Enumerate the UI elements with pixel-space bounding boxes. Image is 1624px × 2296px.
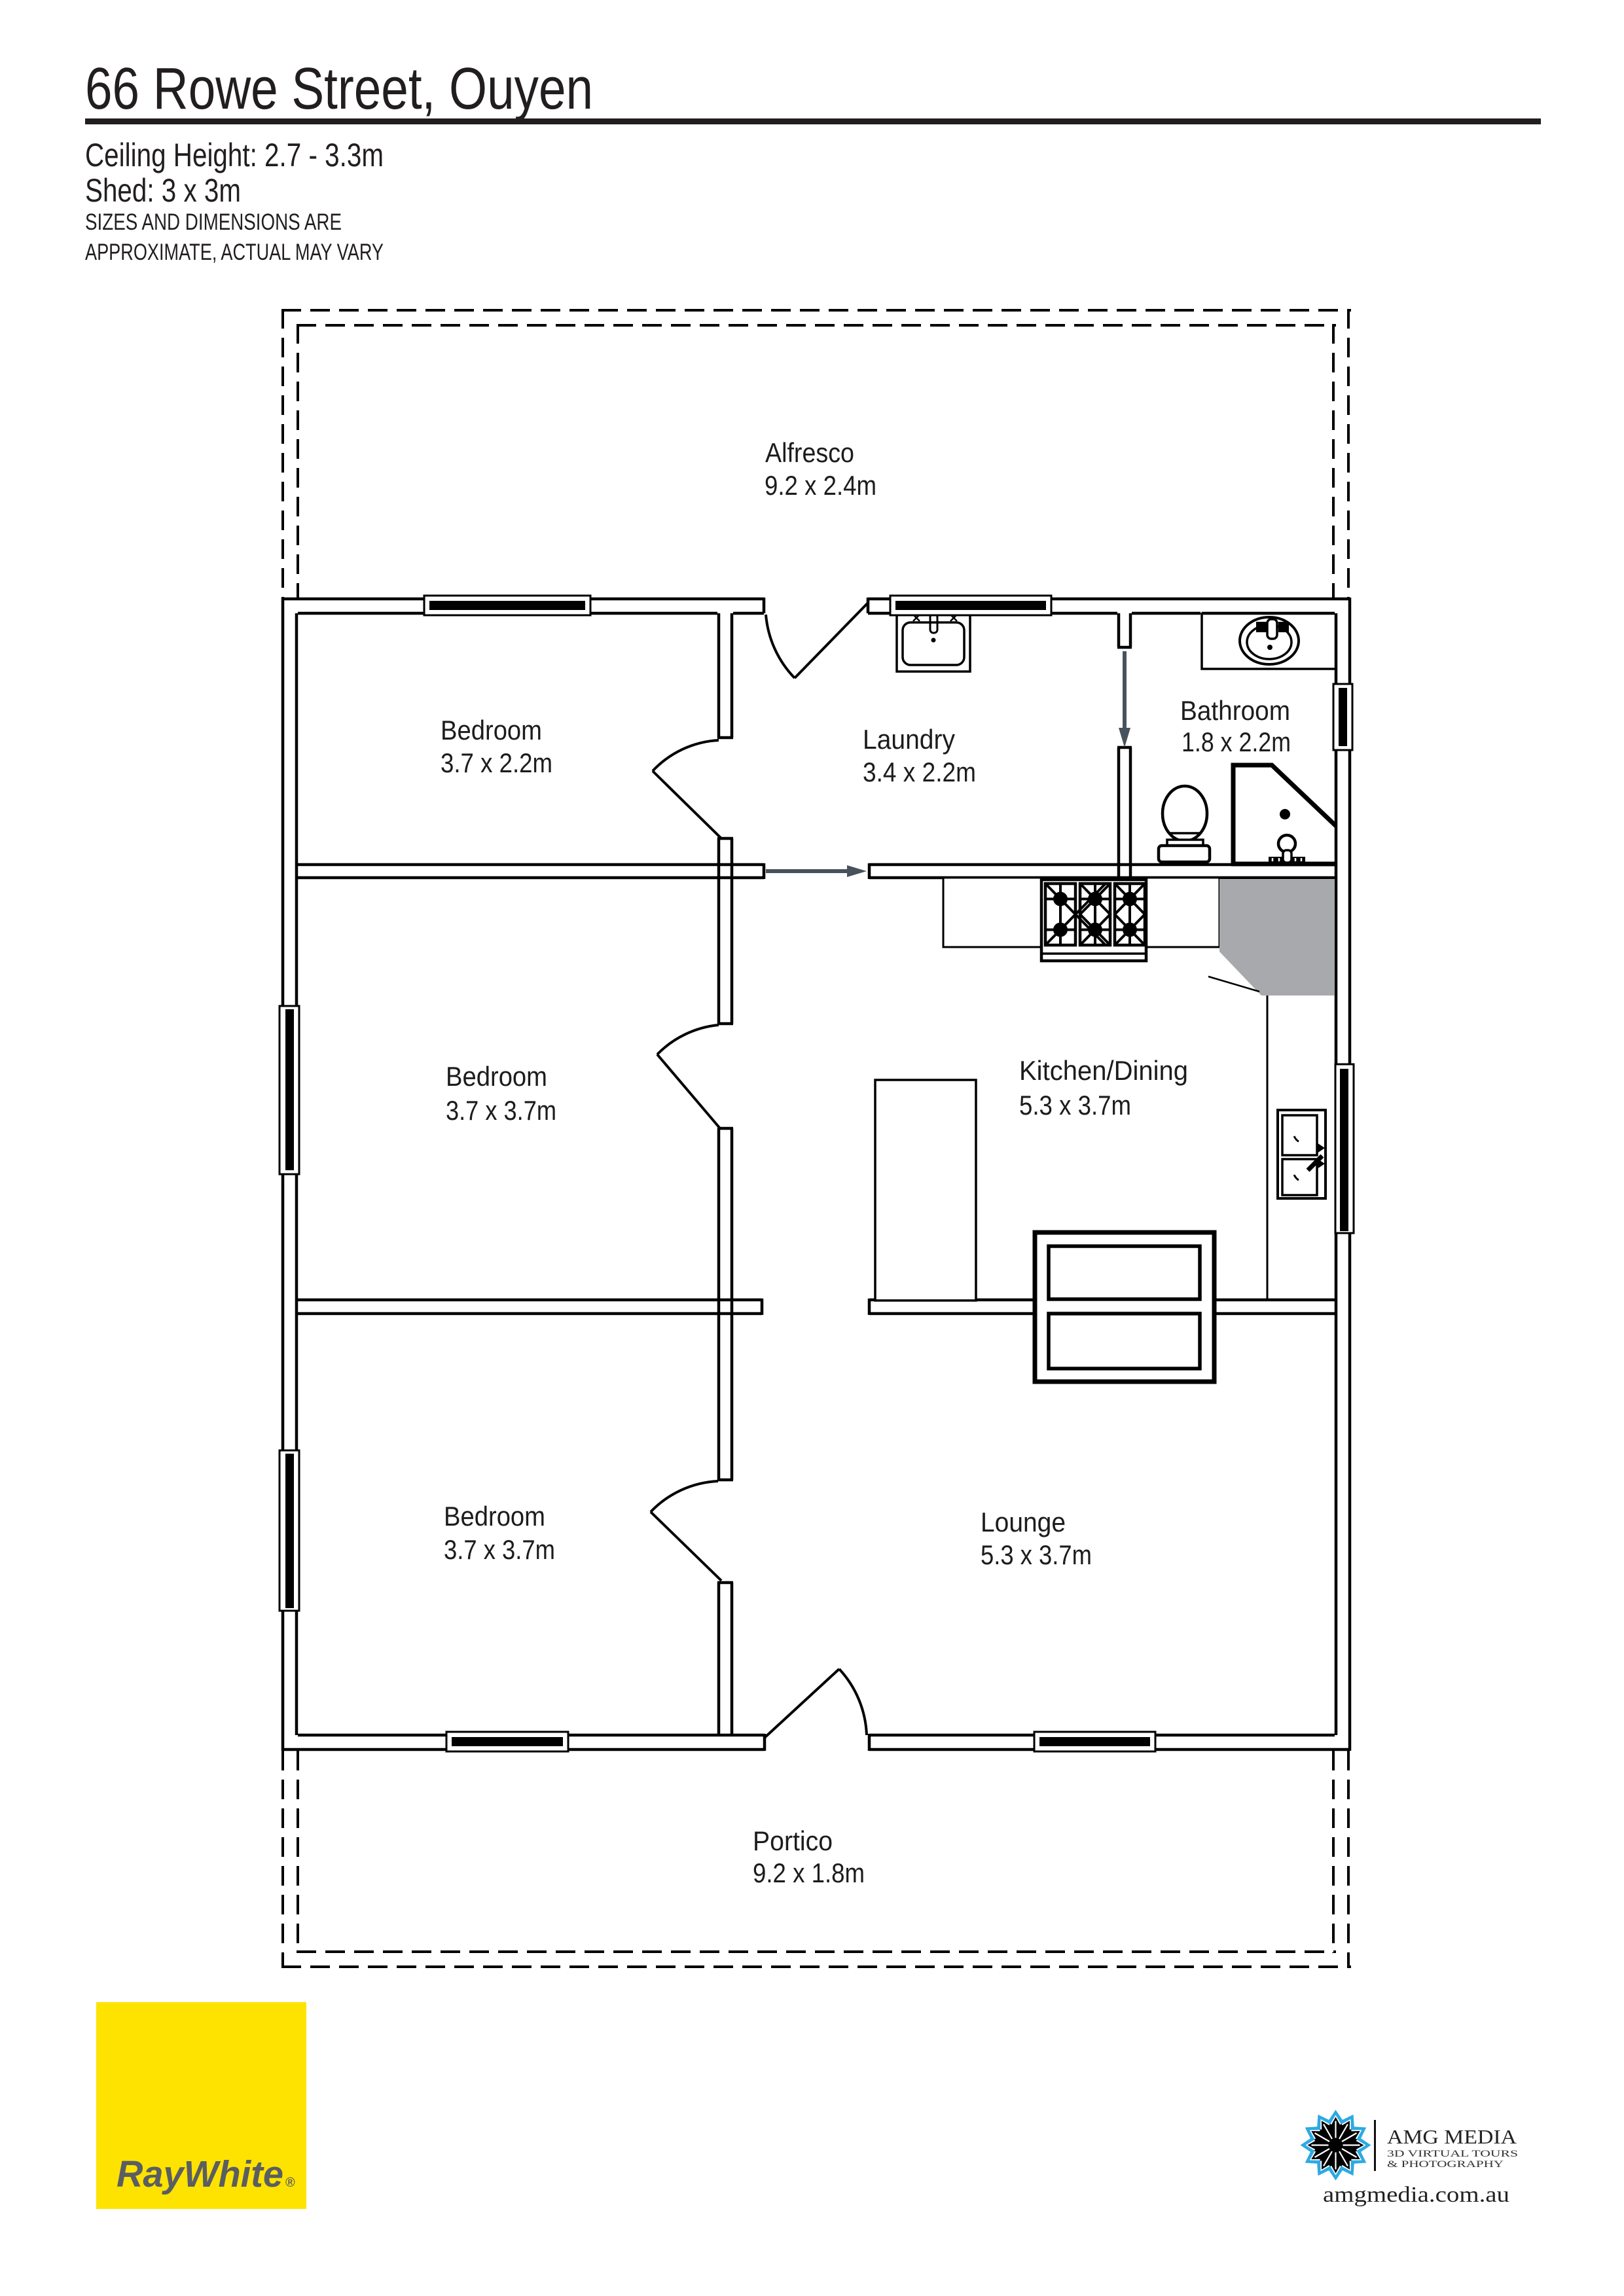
svg-text:Shed: 3 x 3m: Shed: 3 x 3m xyxy=(85,172,241,209)
svg-text:Bathroom: Bathroom xyxy=(1180,695,1290,726)
svg-text:3.4 x 2.2m: 3.4 x 2.2m xyxy=(863,757,976,787)
svg-text:Bedroom: Bedroom xyxy=(441,715,542,745)
svg-text:Kitchen/Dining: Kitchen/Dining xyxy=(1019,1055,1188,1086)
svg-text:9.2 x 1.8m: 9.2 x 1.8m xyxy=(753,1857,865,1888)
svg-text:5.3 x 3.7m: 5.3 x 3.7m xyxy=(1019,1090,1131,1121)
svg-text:3D VIRTUAL TOURS: 3D VIRTUAL TOURS xyxy=(1387,2149,1518,2159)
svg-text:Bedroom: Bedroom xyxy=(446,1061,547,1092)
svg-text:3.7 x 3.7m: 3.7 x 3.7m xyxy=(446,1095,556,1126)
svg-text:SIZES AND DIMENSIONS ARE: SIZES AND DIMENSIONS ARE xyxy=(85,209,342,235)
svg-text:Lounge: Lounge xyxy=(981,1507,1066,1537)
svg-text:3.7 x 3.7m: 3.7 x 3.7m xyxy=(444,1534,555,1565)
svg-text:APPROXIMATE, ACTUAL MAY VARY: APPROXIMATE, ACTUAL MAY VARY xyxy=(85,240,384,265)
svg-text:RayWhite: RayWhite xyxy=(117,2153,283,2195)
svg-text:Ceiling Height: 2.7 - 3.3m: Ceiling Height: 2.7 - 3.3m xyxy=(85,137,384,173)
svg-text:Portico: Portico xyxy=(753,1825,833,1856)
svg-text:& PHOTOGRAPHY: & PHOTOGRAPHY xyxy=(1387,2159,1504,2170)
svg-text:amgmedia.com.au: amgmedia.com.au xyxy=(1323,2183,1509,2207)
svg-text:9.2 x 2.4m: 9.2 x 2.4m xyxy=(765,470,876,501)
svg-text:AMG MEDIA: AMG MEDIA xyxy=(1387,2125,1517,2148)
svg-text:1.8 x 2.2m: 1.8 x 2.2m xyxy=(1182,726,1291,757)
svg-text:3.7 x 2.2m: 3.7 x 2.2m xyxy=(441,747,552,778)
svg-text:Laundry: Laundry xyxy=(863,724,955,755)
svg-text:Alfresco: Alfresco xyxy=(765,437,854,468)
svg-text:®: ® xyxy=(285,2176,295,2190)
svg-text:Bedroom: Bedroom xyxy=(444,1501,545,1532)
svg-text:5.3 x 3.7m: 5.3 x 3.7m xyxy=(981,1539,1092,1570)
svg-text:66 Rowe Street, Ouyen: 66 Rowe Street, Ouyen xyxy=(85,56,593,122)
